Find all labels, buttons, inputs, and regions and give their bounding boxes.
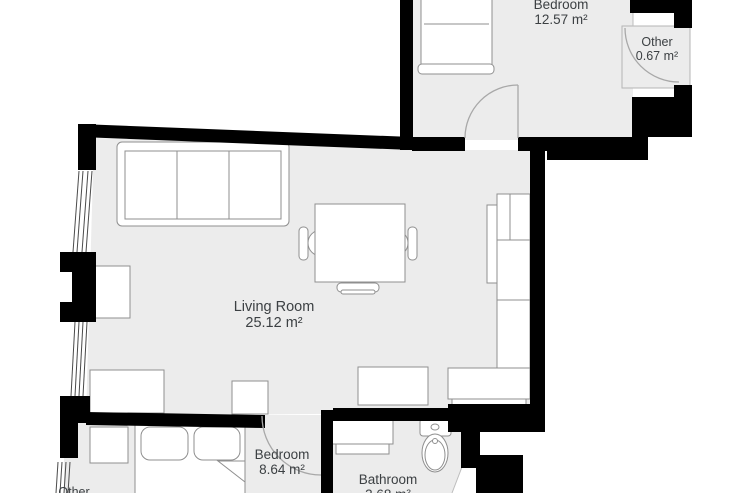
counter-bottom-right (448, 368, 530, 407)
room-name: Other (636, 36, 678, 50)
wall-corner-bottom-right (448, 404, 545, 432)
room-area: 0.67 m² (636, 50, 678, 64)
room-name: Bedroom (534, 0, 589, 12)
vanity-sink (331, 420, 393, 454)
single-bed (418, 0, 494, 74)
room-area: 8.64 m² (255, 462, 310, 477)
wardrobe-left (94, 266, 130, 318)
floor-plan-drawing (0, 0, 740, 493)
dining-table (315, 204, 405, 282)
nightstand (90, 427, 128, 463)
window-upper (73, 171, 92, 252)
window-middle (71, 322, 87, 396)
room-name: Bedroom (255, 447, 310, 462)
room-label-living-room: Living Room 25.12 m² (234, 299, 315, 331)
double-bed (135, 421, 245, 493)
wall-pillar-left (60, 252, 96, 322)
dining-set (299, 204, 417, 294)
wall-top-right-h (630, 0, 675, 13)
room-name: Bathroom (359, 472, 418, 487)
room-label-other-top: Other 0.67 m² (636, 36, 678, 63)
wall-band-right (547, 147, 648, 160)
room-label-bedroom-top: Bedroom 12.57 m² (534, 0, 589, 27)
cabinet-small (232, 381, 268, 414)
wall-step-right (632, 97, 692, 137)
room-area: 25.12 m² (234, 315, 315, 331)
room-label-bathroom: Bathroom 3.68 m² (359, 472, 418, 493)
sofa (117, 142, 289, 226)
wall-corner-top-left (78, 124, 96, 170)
wall-bathroom-top (333, 408, 459, 421)
room-area: 3.68 m² (359, 487, 418, 493)
room-area: 12.57 m² (534, 12, 589, 27)
dresser-left (90, 370, 164, 413)
wall-step-bathroom-2 (476, 455, 523, 493)
room-name: Other (58, 486, 89, 493)
wall-top-right-v (674, 0, 692, 28)
wall-bedroom-left (400, 0, 413, 150)
room-name: Living Room (234, 299, 315, 315)
sideboard-right (358, 367, 428, 405)
room-label-bedroom-bottom: Bedroom 8.64 m² (255, 447, 310, 477)
room-label-other-bottom: Other (58, 486, 89, 493)
wall-bedroom-bottom-left (412, 137, 465, 151)
wall-living-right (530, 147, 545, 416)
floor-plan: Bedroom 12.57 m² Other 0.67 m² Living Ro… (0, 0, 740, 493)
wall-bedroom-bathroom (321, 410, 333, 493)
